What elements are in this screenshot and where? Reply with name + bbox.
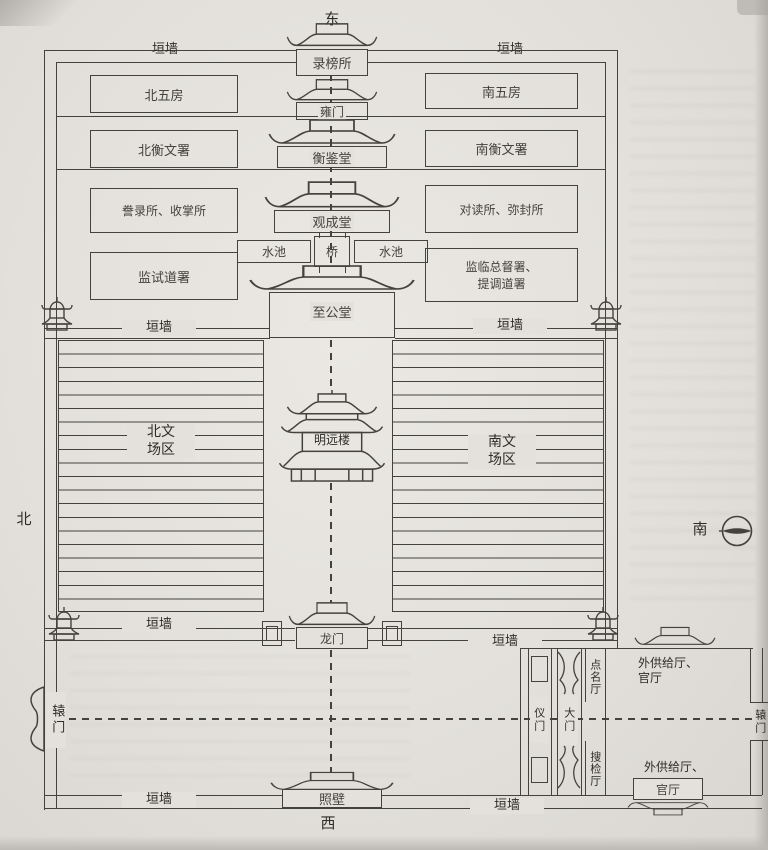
- north-zone-label-line2: 场区: [129, 442, 193, 460]
- hengjian-hall-roof: [266, 118, 398, 148]
- entrance-wall-right-outer: [762, 648, 763, 702]
- wall-label: 垣墙: [122, 320, 196, 336]
- page-corner-shadow: [0, 0, 90, 26]
- search-hall-label: 搜检厅: [588, 742, 602, 796]
- compass-north-label: 北: [12, 510, 36, 529]
- zhigong-hall-label: 至公堂: [310, 302, 353, 321]
- corner-tower-icon: [40, 296, 74, 332]
- rollcall-hall-label: 点名厅: [588, 651, 602, 703]
- guancheng-hall-roof: [262, 180, 402, 212]
- guancheng-hall: 观成堂: [274, 210, 390, 233]
- axis-dashed-line: [330, 483, 332, 603]
- hengjian-hall: 衡鉴堂: [277, 146, 387, 168]
- bridge: 桥: [314, 236, 350, 267]
- south-zone-label: 南文 场区: [468, 434, 536, 469]
- compass-south-label: 南: [688, 520, 712, 539]
- examination-compound-plan: 东 西 北 南 垣墙 垣墙 垣墙 垣墙 垣墙 垣墙 垣墙 垣墙 录榜所 雍门 北…: [0, 0, 768, 850]
- dragon-gate: 龙门: [296, 627, 368, 649]
- main-gate-label: 大门: [560, 695, 578, 745]
- lubang-office-label: 录榜所: [312, 53, 351, 72]
- lubang-office-roof: [285, 22, 379, 50]
- entrance-wall-right: [750, 648, 751, 702]
- proofread-office-label: 对读所、弥封所: [459, 201, 543, 218]
- yi-gate-corridor-line: [528, 648, 529, 795]
- field-wall-top-inner: [44, 338, 270, 339]
- pond-label: 水池: [262, 243, 286, 260]
- gate-pier: [531, 757, 548, 783]
- yi-gate-label: 仪门: [530, 697, 548, 743]
- supply-hall-upper-line1: 外供给厅、: [638, 656, 742, 671]
- jianlin-office-label-line1: 监临总督署、: [465, 258, 537, 275]
- north-five-rooms: 北五房: [90, 75, 238, 113]
- supply-hall-upper-label: 外供给厅、 官厅: [628, 656, 742, 686]
- zhigong-hall: 至公堂: [269, 292, 395, 338]
- outer-wall-right-inner: [605, 62, 606, 640]
- field-wall-bottom: [368, 628, 617, 629]
- entrance-wall-right-outer: [762, 741, 763, 795]
- copy-office-label: 誊录所、收掌所: [122, 202, 206, 219]
- south-zone-label-line1: 南文: [470, 434, 534, 452]
- compass-west-label: 西: [314, 814, 342, 833]
- lubang-office: 录榜所: [296, 49, 368, 76]
- south-hengwen-office: 南衡文署: [425, 130, 578, 167]
- jianshi-office-label: 监试道署: [138, 267, 190, 286]
- yi-gate-corridor-line: [551, 648, 552, 795]
- hengjian-hall-label: 衡鉴堂: [310, 148, 353, 167]
- wall-label: 垣墙: [130, 42, 200, 58]
- field-wall-top-inner: [395, 338, 617, 339]
- search-hall-wall: [585, 741, 586, 795]
- zhigong-hall-roof: [246, 264, 418, 294]
- guancheng-hall-label: 观成堂: [310, 212, 353, 231]
- yuan-gate-bracket-icon: [24, 684, 46, 754]
- jianlin-office-label-line2: 提调道署: [477, 275, 525, 292]
- compass-icon: [718, 512, 756, 550]
- page-corner-shadow: [737, 0, 768, 15]
- bridge-label: 桥: [326, 243, 338, 260]
- axis-dashed-line: [330, 340, 332, 390]
- corner-tower-icon: [589, 296, 623, 332]
- wall-label: 垣墙: [470, 798, 544, 814]
- wall-label: 垣墙: [122, 617, 196, 633]
- mingyuan-tower-label: 明远楼: [303, 433, 361, 448]
- wall-label: 垣墙: [473, 318, 547, 334]
- dragon-gate-roof: [287, 601, 377, 629]
- south-zone-label-line2: 场区: [470, 452, 534, 470]
- jianshi-office: 监试道署: [90, 252, 238, 300]
- pond-west: 水池: [237, 240, 311, 263]
- rollcall-hall-wall: [585, 648, 586, 702]
- supply-hall-lower-roof: [626, 800, 710, 816]
- supply-hall-lower-line1: 外供给厅、: [636, 760, 744, 775]
- wall-label: 垣墙: [475, 42, 545, 58]
- outer-wall-right: [617, 50, 618, 648]
- south-five-rooms-label: 南五房: [482, 82, 521, 101]
- pond-east: 水池: [354, 240, 428, 263]
- south-hengwen-office-label: 南衡文署: [475, 139, 527, 158]
- entrance-wall: [520, 648, 521, 795]
- south-five-rooms: 南五房: [425, 73, 578, 109]
- yong-gate-label: 雍门: [318, 103, 346, 120]
- dragon-gate-pier: [382, 621, 402, 646]
- screen-wall-label: 照壁: [319, 789, 345, 808]
- axis-dashed-line: [330, 650, 332, 772]
- north-five-rooms-label: 北五房: [144, 85, 183, 104]
- north-zone-label: 北文 场区: [127, 424, 195, 459]
- dragon-gate-label: 龙门: [320, 630, 344, 647]
- yong-gate-roof: [285, 78, 379, 104]
- field-wall-bottom-inner: [44, 640, 295, 641]
- north-hengwen-office-label: 北衡文署: [138, 140, 190, 159]
- north-zone-label-line1: 北文: [129, 424, 193, 442]
- gate-pier: [531, 656, 548, 682]
- yuan-gate-west-label: 辕门: [46, 692, 66, 748]
- north-cells-rows: [58, 340, 264, 612]
- proofread-office: 对读所、弥封所: [425, 185, 578, 233]
- pond-label: 水池: [379, 243, 403, 260]
- main-gate-wings-icon: [556, 650, 582, 696]
- supply-hall-lower: 官厅: [633, 778, 703, 800]
- dragon-gate-pier: [262, 621, 282, 646]
- south-cells-rows: [392, 340, 604, 612]
- supply-hall-lower-line2: 官厅: [656, 781, 680, 798]
- main-gate-wings-icon: [556, 744, 582, 790]
- entrance-wall-right: [750, 741, 751, 795]
- wall-label: 垣墙: [122, 792, 196, 808]
- screen-wall: 照壁: [282, 789, 382, 808]
- page-edge-shadow: [0, 836, 768, 850]
- supply-hall-upper-roof: [633, 626, 717, 648]
- supply-hall-upper-line2: 官厅: [638, 671, 742, 686]
- yuan-gate-east-label: 辕门: [753, 698, 767, 746]
- north-hengwen-office: 北衡文署: [90, 130, 238, 168]
- axis-dashed-line-horizontal: [56, 718, 752, 720]
- entrance-inner-wall: [605, 648, 606, 795]
- copy-office: 誊录所、收掌所: [90, 188, 238, 233]
- entrance-wall-top: [520, 648, 753, 649]
- jianlin-office: 监临总督署、 提调道署: [425, 248, 578, 302]
